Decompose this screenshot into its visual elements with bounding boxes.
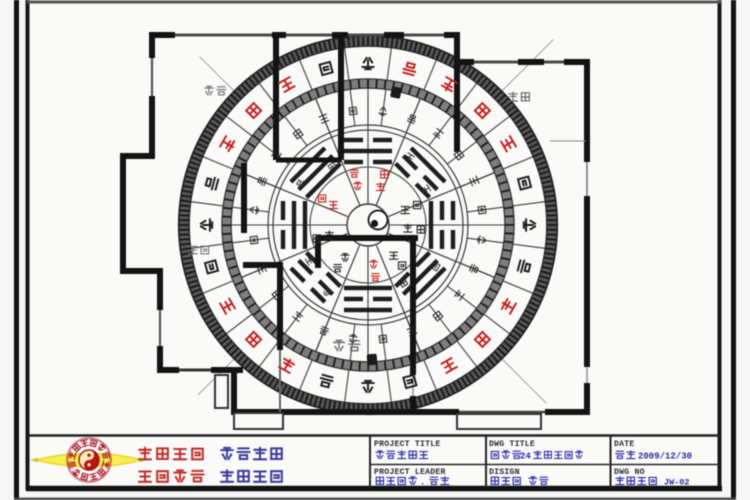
svg-text:PROJECT LEADER: PROJECT LEADER [374,468,446,477]
svg-text:PROJECT TITLE: PROJECT TITLE [374,440,440,449]
svg-text:.: . [420,478,425,488]
svg-text:DWG NO: DWG NO [614,468,645,477]
svg-text:24: 24 [520,452,531,462]
svg-text:DATE: DATE [614,440,634,449]
svg-text:DWG TITLE: DWG TITLE [489,440,535,449]
svg-text:2009/12/30: 2009/12/30 [638,452,692,462]
svg-text:JW-02: JW-02 [664,478,690,488]
svg-text:DISIGN: DISIGN [489,468,520,477]
